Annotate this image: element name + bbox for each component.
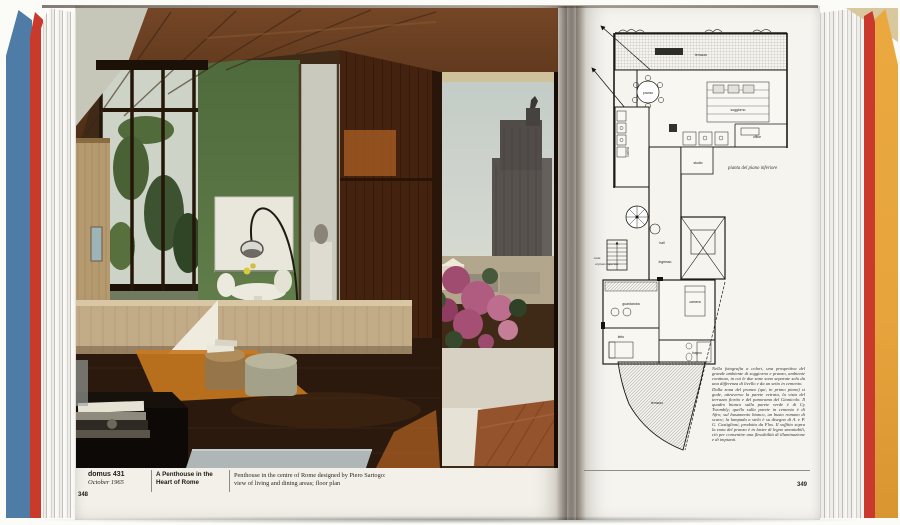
- plan-terrace-north: [615, 30, 787, 71]
- terracotta-floor: [474, 400, 554, 466]
- terrace-view: [426, 8, 558, 468]
- article-body-text: Nella fotografia a colori, una prospetti…: [712, 367, 805, 444]
- plan-room-label: studio: [693, 161, 702, 165]
- yellow-flowers: [244, 268, 251, 275]
- glazed-wall: [101, 60, 203, 301]
- terrace-parapet: [440, 348, 554, 410]
- right-page-number: 349: [797, 482, 807, 488]
- glass-vase: [76, 360, 88, 406]
- body-paragraph-1: Nella fotografia a colori, una prospetti…: [712, 367, 805, 387]
- plan-room-label: pranzo: [643, 91, 653, 95]
- photo-caption-line2: view of living and dining areas; floor p…: [234, 480, 574, 488]
- article-title: A Penthouse in the Heart of Rome: [156, 471, 213, 486]
- blue-gray-slab: [186, 450, 372, 468]
- ceiling-beam: [96, 60, 208, 70]
- plan-room-label: terrazzo: [651, 401, 663, 405]
- plan-kitchen: [615, 107, 649, 187]
- small-framed-picture: [91, 227, 102, 261]
- plan-room-label: soggiorno: [731, 108, 746, 112]
- plan-room-label: hall: [659, 241, 665, 245]
- footer-divider: [151, 470, 152, 492]
- plan-room-label: camera: [689, 300, 700, 304]
- plan-room-label: al piano superiore: [595, 262, 619, 266]
- plan-room-label: ingresso: [659, 260, 672, 264]
- plan-room-label: terrazzo: [695, 53, 707, 57]
- interior-photograph: [76, 8, 558, 468]
- left-cover-edge: [6, 10, 32, 518]
- right-page: terrazzopranzosoggiornocucinaofficestudi…: [576, 6, 820, 520]
- body-paragraph-2: Dalla zona del pranzo (qui, in primo pia…: [712, 388, 805, 442]
- plan-room-label: scala: [594, 256, 601, 260]
- photo-caption: Penthouse in the centre of Rome designed…: [234, 472, 574, 487]
- footer-divider: [229, 470, 230, 492]
- white-chair: [274, 269, 292, 293]
- white-painting: [215, 197, 293, 272]
- white-chair: [217, 273, 235, 297]
- book-top-edge-shadow: [42, 5, 818, 8]
- left-page-edges: [41, 8, 78, 518]
- plan-room-label: cucina: [626, 147, 630, 157]
- plan-room-label: letto: [618, 335, 625, 339]
- journal-name: domus 431: [88, 471, 125, 478]
- issue-date: October 1965: [88, 479, 124, 486]
- left-page: domus 431 October 1965 348 A Penthouse i…: [75, 6, 567, 520]
- plan-room-label: guardaroba: [622, 302, 639, 306]
- green-pouf: [245, 353, 297, 396]
- pedestal: [310, 242, 332, 310]
- book-gutter: [556, 6, 586, 520]
- doorway-and-bust: [300, 64, 340, 310]
- article-title-line1: A Penthouse in the: [156, 471, 213, 479]
- right-cover-edge: [875, 9, 898, 518]
- footer-rule: [584, 470, 810, 471]
- lit-niche: [344, 130, 396, 176]
- plan-living-room: [637, 70, 787, 147]
- right-page-edges: [818, 8, 866, 518]
- plan-room-label: bagno: [692, 351, 702, 355]
- article-title-line2: Heart of Rome: [156, 479, 213, 487]
- plan-caption: pianta del piano inferiore: [728, 166, 777, 171]
- roman-bust: [314, 224, 328, 244]
- photo-caption-line1: Penthouse in the centre of Rome designed…: [234, 472, 574, 480]
- travertine-bench: [76, 300, 412, 354]
- right-endpaper-stripe: [864, 11, 876, 518]
- plan-room-label: office: [753, 135, 761, 139]
- book-drop-shadow: [28, 516, 872, 524]
- book-stack: [76, 401, 150, 438]
- left-page-number: 348: [78, 492, 88, 498]
- open-book-spread: domus 431 October 1965 348 A Penthouse i…: [0, 0, 900, 525]
